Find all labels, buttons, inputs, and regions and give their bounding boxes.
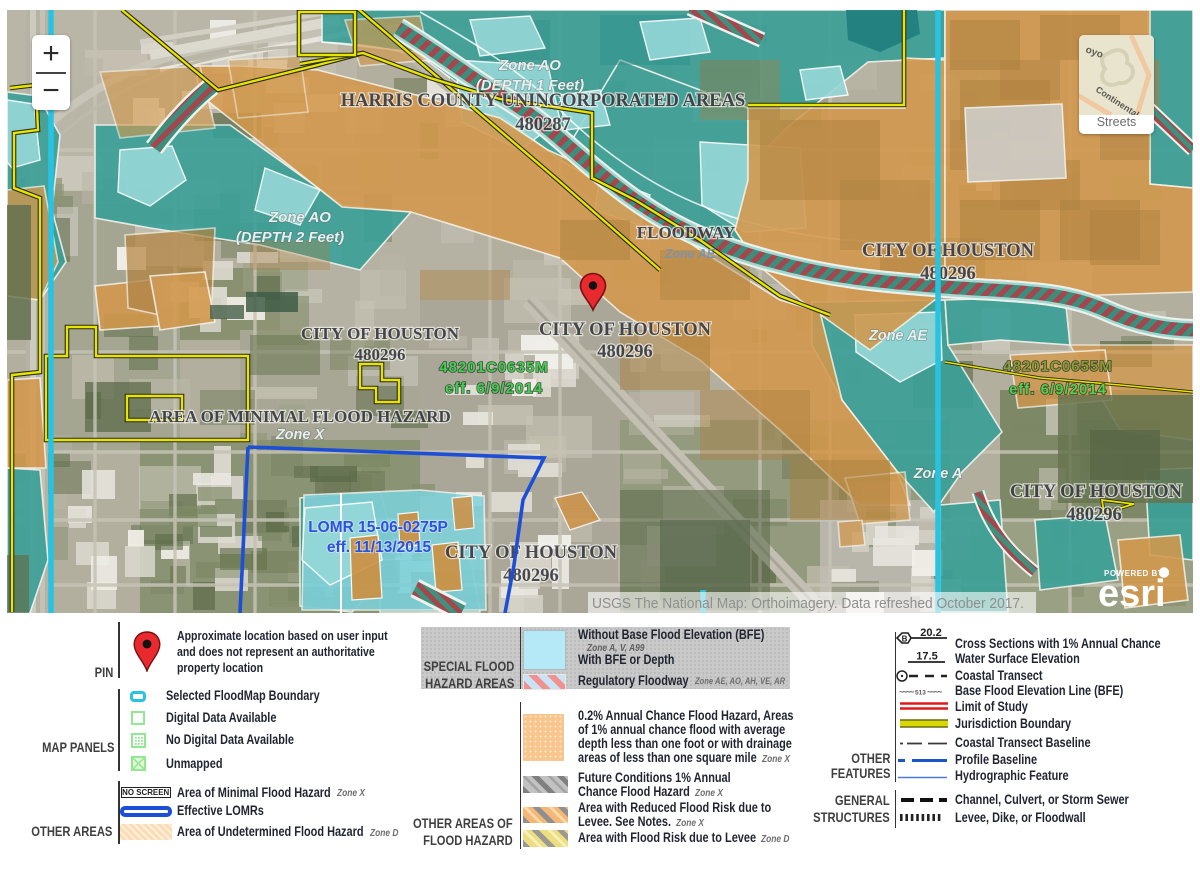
svg-text:20.2: 20.2	[920, 627, 941, 639]
svg-text:HARRIS COUNTY UNINCORPORATED A: HARRIS COUNTY UNINCORPORATED AREAS	[341, 91, 745, 111]
svg-text:CITY OF HOUSTON: CITY OF HOUSTON	[301, 324, 460, 343]
svg-text:CITY OF HOUSTON: CITY OF HOUSTON	[539, 320, 712, 340]
svg-text:eff. 6/9/2014: eff. 6/9/2014	[445, 380, 543, 397]
svg-text:Zone AE: Zone AE	[868, 328, 929, 344]
svg-text:eff. 11/13/2015: eff. 11/13/2015	[327, 539, 432, 556]
svg-text:CITY OF HOUSTON: CITY OF HOUSTON	[862, 241, 1035, 261]
svg-text:Zone AO: Zone AO	[498, 57, 561, 74]
svg-text:513: 513	[915, 690, 926, 697]
svg-text:FLOODWAY: FLOODWAY	[637, 223, 736, 242]
svg-text:B: B	[902, 635, 908, 644]
svg-text:480296: 480296	[597, 342, 653, 362]
svg-text:(DEPTH 1 Feet): (DEPTH 1 Feet)	[476, 77, 584, 94]
svg-text:480296: 480296	[355, 345, 406, 364]
svg-text:480296: 480296	[1066, 505, 1122, 525]
svg-text:AREA OF MINIMAL FLOOD HAZARD: AREA OF MINIMAL FLOOD HAZARD	[149, 407, 451, 426]
svg-text:LOMR 15-06-0275P: LOMR 15-06-0275P	[308, 519, 448, 536]
svg-text:Zone X: Zone X	[275, 427, 326, 443]
svg-text:Zone AE: Zone AE	[664, 247, 716, 261]
svg-text:esri: esri	[1098, 573, 1166, 613]
svg-text:CITY OF HOUSTON: CITY OF HOUSTON	[445, 543, 618, 563]
svg-text:~~~~: ~~~~	[927, 687, 942, 697]
svg-text:~~~~: ~~~~	[899, 687, 914, 697]
svg-text:480287: 480287	[515, 115, 571, 135]
svg-text:48201C0635M: 48201C0635M	[439, 359, 548, 376]
svg-text:17.5: 17.5	[916, 651, 937, 663]
svg-text:(DEPTH 2 Feet): (DEPTH 2 Feet)	[236, 229, 344, 246]
svg-text:eff. 6/9/2014: eff. 6/9/2014	[1009, 381, 1107, 398]
svg-text:CITY OF HOUSTON: CITY OF HOUSTON	[1010, 482, 1183, 502]
svg-text:48201C0655M: 48201C0655M	[1003, 358, 1112, 375]
svg-text:Zone AO: Zone AO	[268, 209, 331, 226]
svg-text:USGS The National Map: Orthoim: USGS The National Map: Orthoimagery. Dat…	[592, 596, 1024, 613]
svg-text:480296: 480296	[920, 264, 976, 284]
